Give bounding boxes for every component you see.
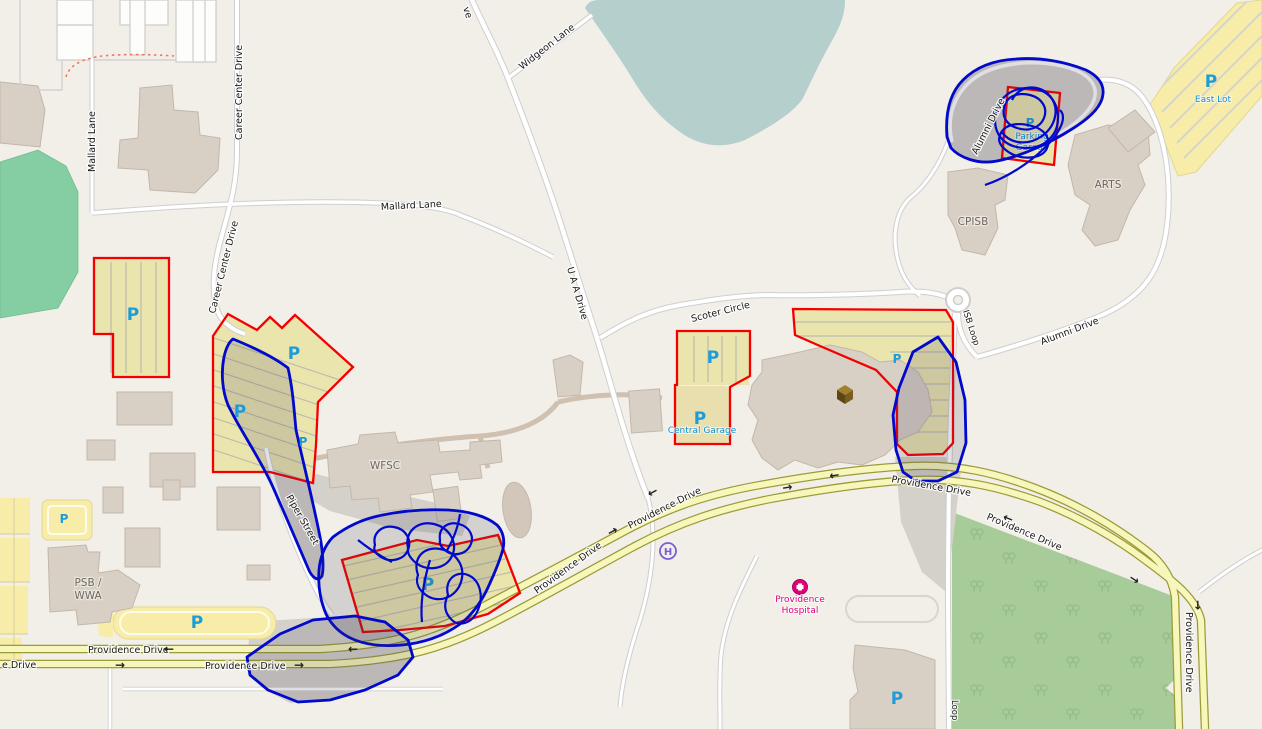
parking-icon: P (127, 305, 139, 325)
building (163, 480, 180, 500)
building (103, 487, 123, 513)
road-label: Providence Drive (1183, 612, 1194, 693)
arrow-right-icon: → (294, 658, 304, 672)
building (117, 392, 172, 425)
parking-icon: P (288, 344, 300, 364)
parking-icon: P (191, 613, 203, 633)
parking-icon: P (891, 689, 903, 709)
hospital-garage-building (850, 645, 935, 729)
road-label: Career Center Drive (234, 45, 245, 140)
svg-text:H: H (664, 547, 672, 558)
building (217, 487, 260, 530)
parking-icon: P (234, 402, 246, 422)
arrow-left-icon: ← (348, 642, 358, 656)
building (0, 82, 45, 147)
building-label-arts: ARTS (1095, 179, 1122, 191)
east-lot-label: East Lot (1195, 95, 1232, 105)
building-label-psb: WWA (74, 590, 102, 602)
building-label-cpisb: CPISB (958, 216, 989, 228)
sports-field (0, 150, 78, 318)
parking-icon: P (1205, 72, 1217, 92)
parking-icon: P (60, 512, 69, 526)
building (629, 389, 663, 433)
arrow-right-icon: → (1191, 600, 1205, 610)
parking-icon: P (893, 352, 902, 366)
building (553, 355, 583, 397)
road-label: Mallard Lane (87, 111, 98, 172)
arrow-left-icon: ← (164, 642, 174, 656)
building (247, 565, 270, 580)
building (125, 528, 160, 567)
parking-icon: P (299, 435, 308, 449)
building-label-psb: PSB / (74, 577, 102, 589)
arrow-right-icon: → (115, 658, 125, 672)
road-label: e Drive (2, 660, 36, 671)
hospital-label: Providence (775, 595, 825, 605)
road-label: Providence Drive (205, 661, 286, 672)
central-garage-label: Central Garage (668, 426, 737, 436)
hospital-icon (793, 580, 808, 595)
map-canvas[interactable]: P P P Parking Garage (0, 0, 1262, 729)
parking-icon: P (707, 348, 719, 368)
building (87, 440, 115, 460)
building-label-wfsc: WFSC (370, 460, 400, 472)
hospital-label: Hospital (782, 606, 819, 616)
road-label: Providence Drive (88, 645, 169, 656)
road-label: Loop (949, 700, 959, 720)
